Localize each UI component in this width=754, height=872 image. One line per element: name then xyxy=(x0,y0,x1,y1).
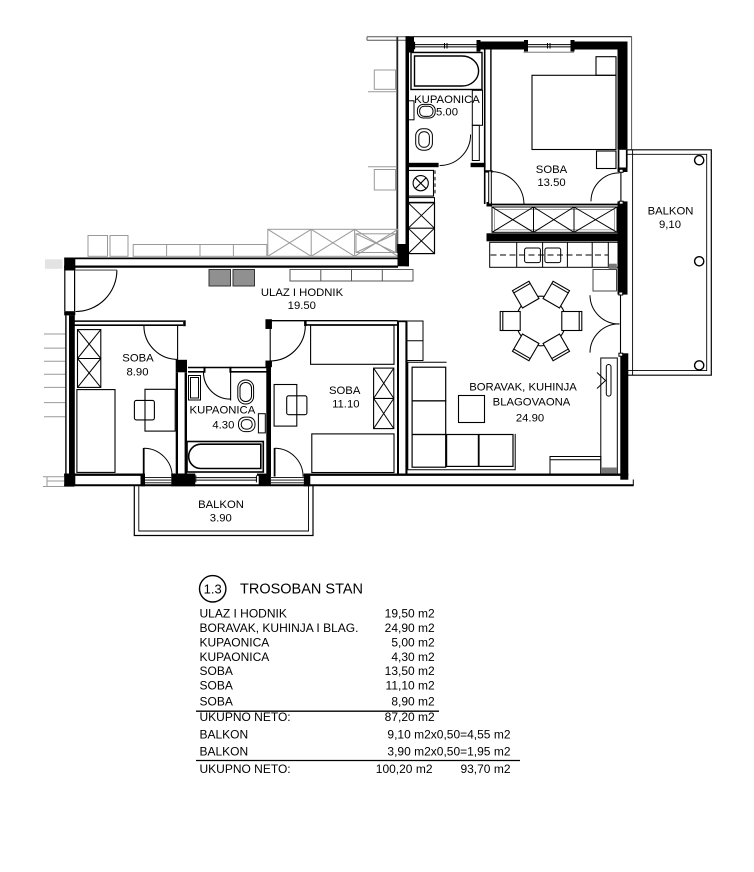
svg-text:SOBA: SOBA xyxy=(122,352,154,364)
svg-text:87,20 m2: 87,20 m2 xyxy=(385,710,435,724)
svg-text:SOBA: SOBA xyxy=(329,385,361,397)
svg-text:9,10: 9,10 xyxy=(659,219,681,231)
svg-text:SOBA: SOBA xyxy=(536,164,568,176)
svg-text:13.50: 13.50 xyxy=(537,177,565,189)
svg-text:BORAVAK, KUHINJA I BLAG.: BORAVAK, KUHINJA I BLAG. xyxy=(200,621,359,635)
svg-text:BALKON: BALKON xyxy=(200,727,249,741)
svg-text:19.50: 19.50 xyxy=(288,300,316,312)
svg-text:ULAZ I HODNIK: ULAZ I HODNIK xyxy=(200,607,287,621)
svg-text:93,70 m2: 93,70 m2 xyxy=(460,762,510,776)
svg-text:SOBA: SOBA xyxy=(200,695,233,709)
svg-text:KUPAONICA: KUPAONICA xyxy=(414,94,480,106)
svg-text:TROSOBAN STAN: TROSOBAN STAN xyxy=(240,582,363,598)
svg-text:9,10 m2x0,50=4,55 m2: 9,10 m2x0,50=4,55 m2 xyxy=(387,727,510,741)
svg-text:24,90 m2: 24,90 m2 xyxy=(385,621,435,635)
svg-text:UKUPNO NETO:: UKUPNO NETO: xyxy=(200,762,291,776)
svg-text:5,00 m2: 5,00 m2 xyxy=(391,635,435,649)
svg-text:8.90: 8.90 xyxy=(127,366,149,378)
svg-text:BALKON: BALKON xyxy=(648,206,694,218)
svg-text:24.90: 24.90 xyxy=(516,412,544,424)
svg-text:KUPAONICA: KUPAONICA xyxy=(200,635,270,649)
svg-text:KUPAONICA: KUPAONICA xyxy=(190,405,256,417)
svg-text:1.3: 1.3 xyxy=(204,581,222,596)
svg-text:UKUPNO NETO:: UKUPNO NETO: xyxy=(200,710,291,724)
svg-text:11.10: 11.10 xyxy=(332,399,359,411)
svg-text:13,50 m2: 13,50 m2 xyxy=(385,664,435,678)
svg-text:KUPAONICA: KUPAONICA xyxy=(200,650,270,664)
svg-text:BALKON: BALKON xyxy=(200,745,249,759)
svg-text:4,30 m2: 4,30 m2 xyxy=(391,650,435,664)
svg-text:100,20 m2: 100,20 m2 xyxy=(376,762,433,776)
svg-text:BALKON: BALKON xyxy=(198,499,244,511)
svg-text:8,90 m2: 8,90 m2 xyxy=(391,695,435,709)
svg-text:5.00: 5.00 xyxy=(436,106,458,118)
svg-text:ULAZ I HODNIK: ULAZ I HODNIK xyxy=(261,287,344,299)
svg-text:4.30: 4.30 xyxy=(212,420,234,432)
svg-text:19,50 m2: 19,50 m2 xyxy=(385,607,435,621)
svg-text:SOBA: SOBA xyxy=(200,679,233,693)
svg-text:SOBA: SOBA xyxy=(200,664,233,678)
svg-text:3,90 m2x0,50=1,95 m2: 3,90 m2x0,50=1,95 m2 xyxy=(387,745,510,759)
svg-text:3.90: 3.90 xyxy=(210,513,232,525)
svg-text:BORAVAK, KUHINJA: BORAVAK, KUHINJA xyxy=(469,382,577,394)
svg-text:BLAGOVAONA: BLAGOVAONA xyxy=(493,396,571,408)
svg-text:11,10 m2: 11,10 m2 xyxy=(386,679,435,693)
